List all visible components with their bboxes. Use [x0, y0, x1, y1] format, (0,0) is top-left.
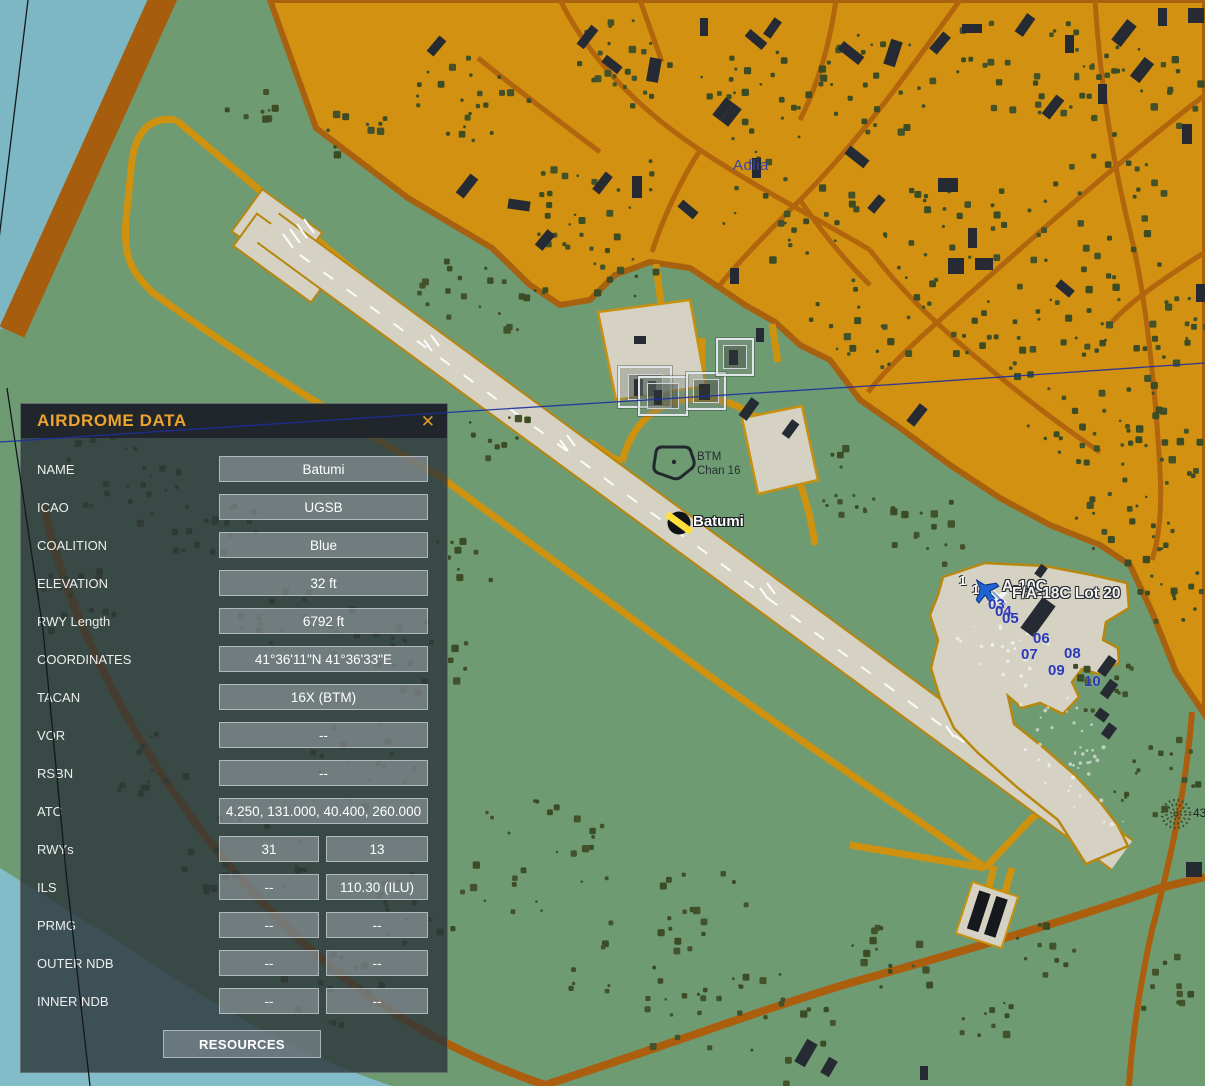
field-value: -- — [219, 722, 428, 748]
static-object-icon[interactable] — [716, 338, 754, 376]
field-value: 13 — [326, 836, 428, 862]
static-object-icon[interactable] — [686, 372, 726, 410]
close-icon[interactable]: ✕ — [421, 413, 435, 430]
field-value: 32 ft — [219, 570, 428, 596]
field-row: RSBN-- — [21, 754, 447, 792]
field-value: 4.250, 131.000, 40.400, 260.000 — [219, 798, 428, 824]
field-label: VOR — [37, 728, 219, 743]
field-value: -- — [219, 988, 319, 1014]
field-label: NAME — [37, 462, 219, 477]
field-value: -- — [326, 950, 428, 976]
field-value: 31 — [219, 836, 319, 862]
panel-title: AIRDROME DATA — [21, 411, 187, 431]
field-value: -- — [326, 912, 428, 938]
field-value: Batumi — [219, 456, 428, 482]
field-label: ILS — [37, 880, 219, 895]
panel-header: AIRDROME DATA ✕ — [21, 404, 447, 438]
static-object-icon[interactable] — [638, 376, 688, 416]
field-label: OUTER NDB — [37, 956, 219, 971]
field-row: INNER NDB---- — [21, 982, 447, 1020]
field-label: ATC — [37, 804, 219, 819]
field-label: ICAO — [37, 500, 219, 515]
field-value: -- — [219, 912, 319, 938]
field-row: NAMEBatumi — [21, 450, 447, 488]
field-label: COORDINATES — [37, 652, 219, 667]
field-label: COALITION — [37, 538, 219, 553]
field-value: 41°36'11"N 41°36'33"E — [219, 646, 428, 672]
field-row: ATC4.250, 131.000, 40.400, 260.000 — [21, 792, 447, 830]
field-label: TACAN — [37, 690, 219, 705]
field-label: INNER NDB — [37, 994, 219, 1009]
field-value: -- — [219, 950, 319, 976]
field-label: RSBN — [37, 766, 219, 781]
field-row: TACAN16X (BTM) — [21, 678, 447, 716]
field-row: OUTER NDB---- — [21, 944, 447, 982]
airdrome-data-panel: AIRDROME DATA ✕ NAMEBatumiICAOUGSBCOALIT… — [20, 403, 448, 1073]
airdrome-fields: NAMEBatumiICAOUGSBCOALITIONBlueELEVATION… — [21, 450, 447, 1020]
field-value: UGSB — [219, 494, 428, 520]
field-row: RWYs3113 — [21, 830, 447, 868]
field-row: COALITIONBlue — [21, 526, 447, 564]
field-row: COORDINATES41°36'11"N 41°36'33"E — [21, 640, 447, 678]
field-row: RWY Length6792 ft — [21, 602, 447, 640]
resources-button[interactable]: RESOURCES — [163, 1030, 321, 1058]
field-value: 6792 ft — [219, 608, 428, 634]
field-label: RWY Length — [37, 614, 219, 629]
field-row: PRMG---- — [21, 906, 447, 944]
field-value: 16X (BTM) — [219, 684, 428, 710]
field-value: -- — [219, 760, 428, 786]
dcs-mission-editor-map[interactable]: { "window": { "title": "AIRDROME DATA", … — [0, 0, 1205, 1086]
field-row: ELEVATION32 ft — [21, 564, 447, 602]
field-row: VOR-- — [21, 716, 447, 754]
field-value: -- — [326, 988, 428, 1014]
field-value: Blue — [219, 532, 428, 558]
field-row: ILS--110.30 (ILU) — [21, 868, 447, 906]
static-object-image — [647, 383, 679, 408]
field-value: 110.30 (ILU) — [326, 874, 428, 900]
field-value: -- — [219, 874, 319, 900]
field-label: PRMG — [37, 918, 219, 933]
field-label: ELEVATION — [37, 576, 219, 591]
field-label: RWYs — [37, 842, 219, 857]
field-row: ICAOUGSB — [21, 488, 447, 526]
